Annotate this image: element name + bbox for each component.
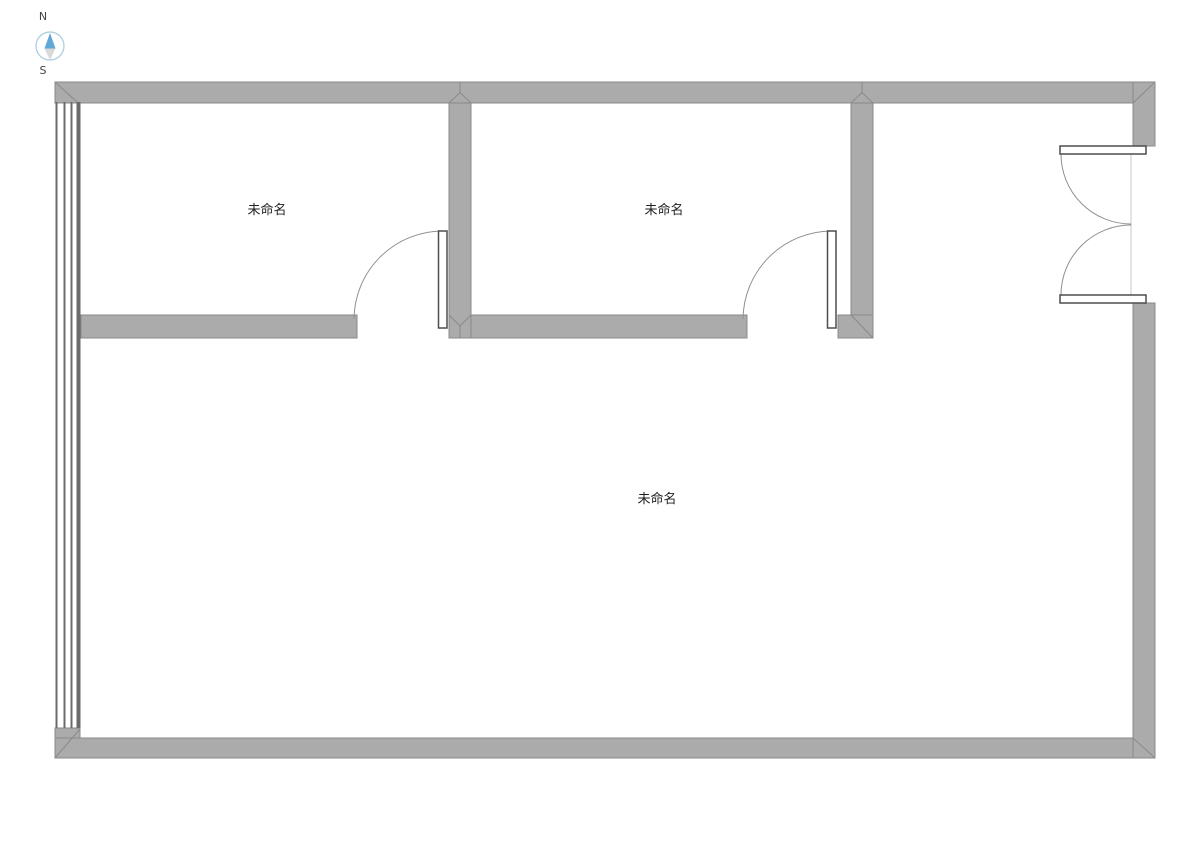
door-room2[interactable] bbox=[743, 231, 836, 328]
wall-right-upper[interactable] bbox=[1133, 82, 1155, 146]
double-door-bottom-leaf bbox=[1060, 295, 1146, 303]
door-room2-leaf bbox=[828, 231, 837, 328]
wall-interior-horizontal-c[interactable] bbox=[838, 315, 873, 338]
door-room1[interactable] bbox=[354, 231, 447, 328]
compass-north-label: N bbox=[39, 10, 47, 23]
floorplan-drawing: 未命名 未命名 未命名 N S bbox=[0, 0, 1191, 842]
compass-south-label: S bbox=[40, 64, 47, 77]
interior-walls bbox=[81, 103, 873, 338]
wall-miter-lines bbox=[55, 82, 1155, 758]
compass: N S bbox=[36, 10, 64, 77]
outer-walls bbox=[55, 82, 1155, 758]
wall-bottom[interactable] bbox=[55, 738, 1155, 758]
door-room2-swing-arc bbox=[743, 231, 831, 319]
wall-right-lower[interactable] bbox=[1133, 303, 1155, 758]
wall-interior-horizontal-a[interactable] bbox=[81, 315, 357, 338]
room-label-2[interactable]: 未命名 bbox=[644, 202, 683, 218]
room-label-1[interactable]: 未命名 bbox=[247, 202, 286, 218]
room-label-3[interactable]: 未命名 bbox=[637, 491, 676, 507]
wall-top[interactable] bbox=[55, 82, 1155, 103]
door-room1-leaf bbox=[439, 231, 448, 328]
double-door-bottom-swing-arc bbox=[1061, 225, 1131, 295]
door-room1-swing-arc bbox=[354, 231, 442, 319]
floorplan-canvas: 未命名 未命名 未命名 N S bbox=[0, 0, 1191, 842]
double-door-right[interactable] bbox=[1060, 146, 1146, 303]
wall-interior-horizontal-b[interactable] bbox=[471, 315, 747, 338]
double-door-top-swing-arc bbox=[1061, 154, 1131, 224]
wall-interior-vertical-2[interactable] bbox=[851, 103, 873, 338]
wall-interior-vertical-1[interactable] bbox=[449, 103, 471, 338]
window-left[interactable] bbox=[57, 102, 79, 728]
double-door-top-leaf bbox=[1060, 146, 1146, 154]
